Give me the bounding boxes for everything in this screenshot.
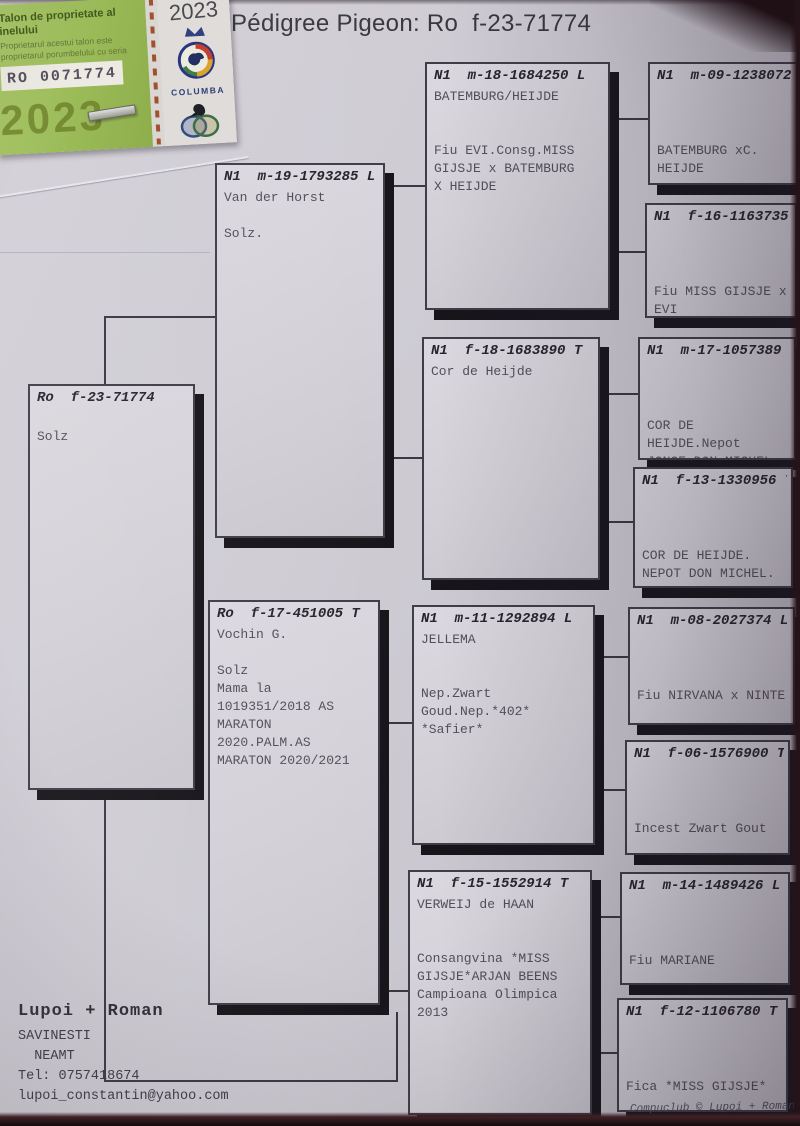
pedigree-box-dam-sire-dam: N1 f-06-1576900 T Incest Zwart Gout [625, 740, 790, 855]
pedigree-box-dam: Ro f-17-451005 T Vochin G. Solz Mama la … [208, 600, 380, 1005]
ring-number: N1 f-16-1163735 T [654, 208, 791, 227]
pedigree-box-sire: N1 m-19-1793285 L Van der Horst Solz. [215, 163, 385, 538]
pigeon-badge-icon [178, 97, 220, 141]
pedigree-box-sire-dam: N1 f-18-1683890 T Cor de Heijde [422, 337, 600, 580]
ring-number: N1 m-18-1684250 L [434, 67, 604, 86]
breeder-email: lupoi_constantin@yahoo.com [18, 1087, 229, 1107]
photo-edge-bottom [0, 1112, 800, 1126]
connector-line [608, 118, 650, 120]
pedigree-box-dam-sire-sire: N1 m-08-2027374 L Fiu NIRVANA x NINTE [628, 607, 795, 725]
sticker-green-card: Talon de proprietate al inelului Proprie… [0, 0, 153, 155]
box-notes: Incest Zwart Gout [634, 766, 784, 838]
columba-crown-logo-icon [170, 23, 221, 86]
connector-line [378, 990, 410, 992]
breeder-contact: Lupoi + Roman SAVINESTI NEAMT Tel: 07574… [18, 1002, 229, 1107]
connector-line [608, 251, 647, 253]
ring-number: N1 m-08-2027374 L [637, 612, 789, 631]
photo-edge-corner [650, 0, 800, 52]
box-notes: Fica *MISS GIJSJE* [626, 1024, 782, 1096]
connector-line [590, 789, 627, 791]
pedigree-box-dam-dam-sire: N1 m-14-1489426 L Fiu MARIANE [620, 872, 790, 985]
connector-line [593, 656, 630, 658]
box-notes: BATEMBURG/HEIJDE Fiu EVI.Consg.MISS GIJS… [434, 88, 604, 196]
box-notes: Fiu MISS GIJSJE x EVI [654, 229, 791, 318]
box-notes: COR DE HEIJDE.Nepot JONGE DON MICHEL [647, 363, 790, 460]
box-notes: Cor de Heijde [431, 363, 594, 381]
box-notes: Solz [37, 410, 189, 446]
ring-number: Ro f-17-451005 T [217, 605, 374, 624]
page-title: Pédigree Pigeon: Ro f-23-71774 [231, 10, 591, 38]
ownership-sticker: Talon de proprietate al inelului Proprie… [0, 0, 237, 155]
breeder-name: Lupoi + Roman [18, 1002, 229, 1022]
ring-number: N1 m-09-1238072 L [657, 67, 792, 86]
sticker-org-name: COLUMBA [162, 84, 234, 98]
box-notes: COR DE HEIJDE. NEPOT DON MICHEL. [642, 493, 787, 583]
pedigree-box-sire-sire: N1 m-18-1684250 L BATEMBURG/HEIJDE Fiu E… [425, 62, 610, 310]
pedigree-box-dam-dam-dam: N1 f-12-1106780 T Fica *MISS GIJSJE* [617, 998, 788, 1112]
connector-line [104, 316, 217, 318]
ring-number: N1 m-19-1793285 L [224, 168, 379, 187]
connector-line [396, 1012, 398, 1082]
connector-line [378, 722, 414, 724]
paper-crease [0, 156, 249, 198]
ring-number: N1 f-18-1683890 T [431, 342, 594, 361]
connector-line [383, 185, 427, 187]
pedigree-box-sire-dam-sire: N1 m-17-1057389 L COR DE HEIJDE.Nepot JO… [638, 337, 796, 460]
box-notes: BATEMBURG xC. HEIJDE [657, 88, 792, 178]
ring-number: N1 m-11-1292894 L [421, 610, 589, 629]
pedigree-box-dam-dam: N1 f-15-1552914 T VERWEIJ de HAAN Consan… [408, 870, 592, 1115]
pedigree-photo: Pédigree Pigeon: Ro f-23-71774 Ro f-23-7… [0, 0, 800, 1126]
ring-number: N1 m-14-1489426 L [629, 877, 784, 896]
breeder-county: NEAMT [18, 1047, 229, 1067]
box-notes: Van der Horst Solz. [224, 189, 379, 243]
breeder-city: SAVINESTI [18, 1027, 229, 1047]
ring-number: N1 m-17-1057389 L [647, 342, 790, 361]
box-notes: Fiu MARIANE [629, 898, 784, 970]
ring-number: Ro f-23-71774 [37, 389, 189, 408]
connector-line [598, 521, 635, 523]
pedigree-box-dam-sire: N1 m-11-1292894 L JELLEMA Nep.Zwart Goud… [412, 605, 595, 845]
connector-line [383, 457, 424, 459]
ring-number: N1 f-06-1576900 T [634, 745, 784, 764]
connector-line [598, 393, 640, 395]
sticker-white-card: 2023 COLUMBA [157, 0, 237, 146]
box-notes: VERWEIJ de HAAN Consangvina *MISS GIJSJE… [417, 896, 586, 1022]
ring-number: N1 f-12-1106780 T [626, 1003, 782, 1022]
photo-edge-right [790, 0, 800, 1126]
breeder-phone: Tel: 0757418674 [18, 1067, 229, 1087]
box-notes: Fiu NIRVANA x NINTE [637, 633, 789, 705]
box-notes: Vochin G. Solz Mama la 1019351/2018 AS M… [217, 626, 374, 770]
ring-number: N1 f-15-1552914 T [417, 875, 586, 894]
pedigree-box-subject: Ro f-23-71774 Solz [28, 384, 195, 790]
pedigree-box-sire-sire-sire: N1 m-09-1238072 L BATEMBURG xC. HEIJDE [648, 62, 798, 185]
paper-crease [0, 252, 210, 253]
pedigree-box-sire-sire-dam: N1 f-16-1163735 T Fiu MISS GIJSJE x EVI [645, 203, 797, 318]
connector-line [590, 916, 622, 918]
sticker-ring-number: RO 0071774 [0, 60, 123, 91]
ring-number: N1 f-13-1330956 T [642, 472, 787, 491]
connector-line [104, 316, 106, 386]
pedigree-box-sire-dam-dam: N1 f-13-1330956 T COR DE HEIJDE. NEPOT D… [633, 467, 793, 588]
box-notes: JELLEMA Nep.Zwart Goud.Nep.*402* *Safier… [421, 631, 589, 739]
